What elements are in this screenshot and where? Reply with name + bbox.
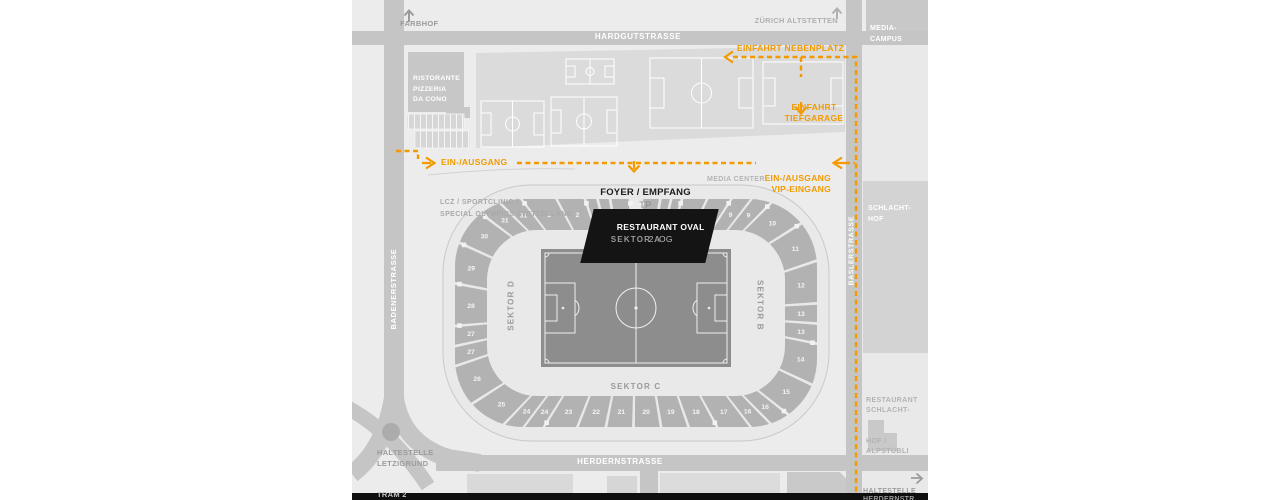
stadium-section-label: 24 bbox=[523, 409, 531, 416]
stadium-section-label: 20 bbox=[642, 409, 650, 416]
street-label-baslerstrasse: BASLERSTRASSE bbox=[847, 196, 856, 306]
sektor-c-label: SEKTOR C bbox=[586, 382, 686, 393]
stadium-section-label: 22 bbox=[592, 409, 600, 416]
stadium-stair-notch bbox=[457, 282, 462, 287]
stadium-section-label: 29 bbox=[468, 265, 476, 272]
stadium-section-label: 25 bbox=[498, 401, 506, 408]
footer-bar bbox=[352, 493, 928, 500]
stadium-section-label: 10 bbox=[769, 221, 777, 228]
stadium-section-label: 13 bbox=[797, 329, 805, 336]
parking-row bbox=[415, 131, 470, 148]
sektor-b-label: SEKTOR B bbox=[754, 255, 765, 355]
direction-zurich-altstetten: ZÜRICH ALTSTETTEN bbox=[708, 16, 838, 26]
stadium-stair-notch bbox=[713, 420, 718, 425]
stadium-area-map: 5667899101112131314151616171819202122232… bbox=[0, 0, 1280, 500]
ristorante-label: RISTORANTEPIZZERIADA CONO bbox=[413, 54, 460, 125]
restaurant-schlachthof-label: RESTAURANTSCHLACHT- HOF /ALPSTÜBLI bbox=[866, 376, 918, 477]
stadium-section-label: 26 bbox=[473, 376, 481, 383]
stop-herdernstr-label: HALTESTELLEHERDERNSTR. BUS 31 bbox=[863, 471, 917, 500]
media-campus-label: MEDIA-CAMPUS bbox=[870, 3, 902, 66]
route-label-ein-ausgang-left: EIN-/AUSGANG bbox=[441, 157, 507, 167]
map-canvas: 5667899101112131314151616171819202122232… bbox=[352, 0, 928, 500]
route-label-einfahrt-tiefgarage: EINFAHRTTIEFGARAGE bbox=[764, 82, 864, 143]
stadium-section-label: 24 bbox=[541, 409, 549, 416]
stadium-section-label: 16 bbox=[761, 404, 769, 411]
direction-farbhof: FARBHOF bbox=[400, 19, 438, 29]
stadium-section-label: 27 bbox=[467, 349, 475, 356]
stadium-section-label: 28 bbox=[467, 303, 475, 310]
stadium-section-label: 14 bbox=[797, 357, 805, 364]
stadium-section-label: 18 bbox=[692, 409, 700, 416]
route-label-einfahrt-nebenplatz: EINFAHRT NEBENPLATZ bbox=[737, 43, 844, 53]
street-label-herdernstrasse: HERDERNSTRASSE bbox=[560, 457, 680, 468]
schlachthof-label: SCHLACHT-HOF bbox=[868, 183, 911, 246]
stadium-section-label: 11 bbox=[792, 246, 799, 253]
street-label-badenerstrasse: BADENERSTRASSE bbox=[389, 234, 399, 344]
stadium-section-label: 16 bbox=[744, 408, 752, 415]
stop-letzigrund-label: HALTESTELLELETZIGRUND TRAM 2 bbox=[377, 427, 434, 500]
stadium-section-label: 15 bbox=[782, 389, 790, 396]
stadium-section-label: 19 bbox=[667, 409, 675, 416]
stadium-stair-notch bbox=[457, 323, 462, 328]
street-label-hardgutstrasse: HARDGUTSTRASSE bbox=[578, 32, 698, 43]
stadium-section-label: 13 bbox=[797, 311, 805, 318]
stadium-section-label: 17 bbox=[720, 409, 728, 416]
sektor-d-label: SEKTOR D bbox=[507, 255, 518, 355]
stadium-section-label: 12 bbox=[797, 283, 805, 290]
stadium-section-label: 27 bbox=[467, 331, 475, 338]
stadium-stair-notch bbox=[810, 340, 815, 345]
stadium-section-label: 23 bbox=[565, 409, 573, 416]
sektor-a-label: SEKTOR A bbox=[586, 235, 686, 246]
stadium-stair-notch bbox=[794, 224, 799, 229]
street-herdernstrasse bbox=[436, 455, 928, 471]
stadium-stair-notch bbox=[782, 409, 787, 414]
stadium-section-label: 21 bbox=[618, 409, 626, 416]
stadium-stair-notch bbox=[544, 420, 549, 425]
